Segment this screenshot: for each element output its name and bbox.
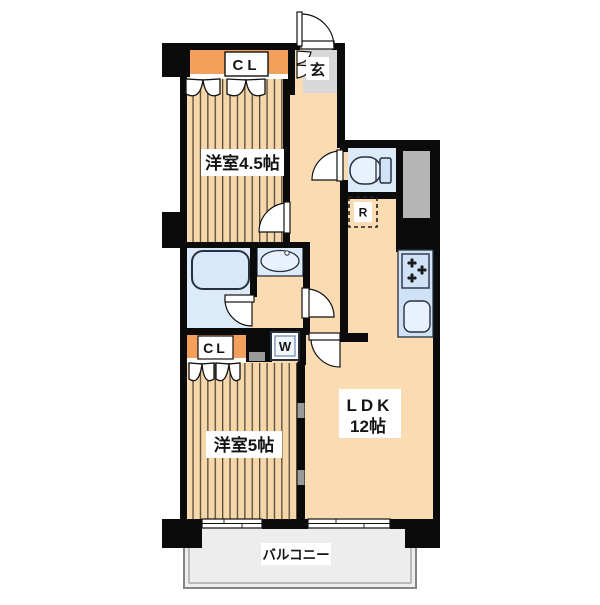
ldk-door-leaf xyxy=(309,333,340,340)
bathroom-door-leaf xyxy=(225,295,254,302)
washing-machine-label: W xyxy=(279,339,292,354)
toilet-door-leaf xyxy=(337,150,343,181)
closet-bottom-folding-doors-icon xyxy=(189,363,240,381)
wall-segment xyxy=(297,362,305,523)
wall-segment xyxy=(262,519,308,529)
closet-bottom: CL xyxy=(187,335,246,381)
wall-segment xyxy=(340,180,348,342)
entrance-threshold xyxy=(301,41,334,49)
pipe-space xyxy=(403,151,430,218)
wall-segment xyxy=(303,242,310,290)
room-5-label: 洋室5帖 xyxy=(214,435,274,455)
wall-segment xyxy=(337,140,440,148)
floor-plan: CL xyxy=(0,0,600,600)
entrance-door-icon xyxy=(297,12,334,49)
entrance-label: 玄 xyxy=(310,61,325,79)
kitchen-sink-icon xyxy=(404,301,430,332)
room-4-5-label: 洋室4.5帖 xyxy=(205,153,280,173)
washroom-door-leaf xyxy=(302,288,309,318)
wall-segment xyxy=(180,43,300,50)
toilet-tank xyxy=(380,158,391,183)
wall-segment xyxy=(250,245,257,297)
closet-bottom-label: CL xyxy=(203,340,228,356)
washbasin-icon xyxy=(261,251,299,272)
toilet-icon xyxy=(350,157,391,184)
wall-segment xyxy=(180,242,310,248)
bathtub-icon xyxy=(192,251,249,289)
washing-machine: W xyxy=(271,332,299,360)
kitchen-counter xyxy=(398,250,433,337)
wall-segment xyxy=(180,50,187,523)
partition-gray-segment xyxy=(298,470,305,485)
entrance-door-leaf xyxy=(297,12,302,46)
wall-segment xyxy=(340,333,368,342)
ldk-size-label: 12帖 xyxy=(350,416,386,436)
ldk-name-label: LDK xyxy=(347,396,394,415)
wall-segment xyxy=(187,519,202,529)
balcony-label: バルコニー xyxy=(262,548,329,563)
closet-top-label: CL xyxy=(233,57,261,74)
wall-gray-segment xyxy=(249,352,265,361)
floor-plan-page: CL xyxy=(0,0,600,600)
partition-gray-segment xyxy=(298,403,305,418)
wall-segment xyxy=(433,148,440,548)
pillar xyxy=(405,519,437,548)
refrigerator-label: R xyxy=(359,206,368,220)
wall-segment xyxy=(337,43,345,148)
faucet-icon xyxy=(285,251,289,255)
room-4-5-door-leaf xyxy=(284,202,290,233)
